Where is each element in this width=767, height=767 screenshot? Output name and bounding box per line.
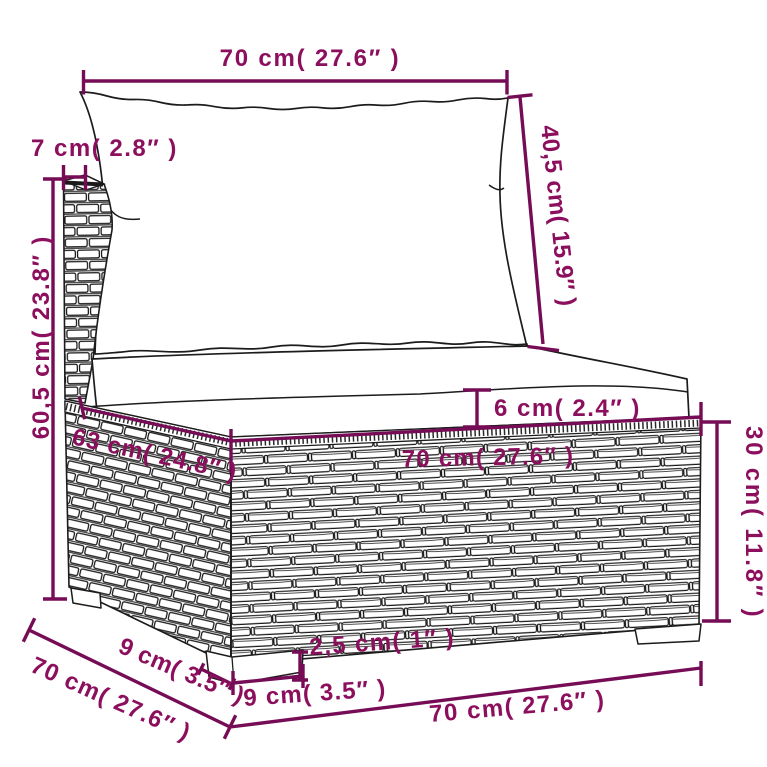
svg-text:70 cm( 27.6″ ): 70 cm( 27.6″ )	[220, 45, 401, 72]
svg-text:7 cm( 2.8″ ): 7 cm( 2.8″ )	[31, 135, 178, 162]
svg-text:6 cm( 2.4″ ): 6 cm( 2.4″ )	[494, 395, 641, 422]
svg-text:30 cm( 11.8″ ): 30 cm( 11.8″ )	[740, 426, 767, 619]
svg-text:60,5 cm( 23.8″ ): 60,5 cm( 23.8″ )	[28, 235, 55, 439]
svg-text:40,5 cm( 15.9″ ): 40,5 cm( 15.9″ )	[535, 124, 581, 308]
svg-text:70 cm( 27.6″ ): 70 cm( 27.6″ )	[402, 442, 575, 473]
